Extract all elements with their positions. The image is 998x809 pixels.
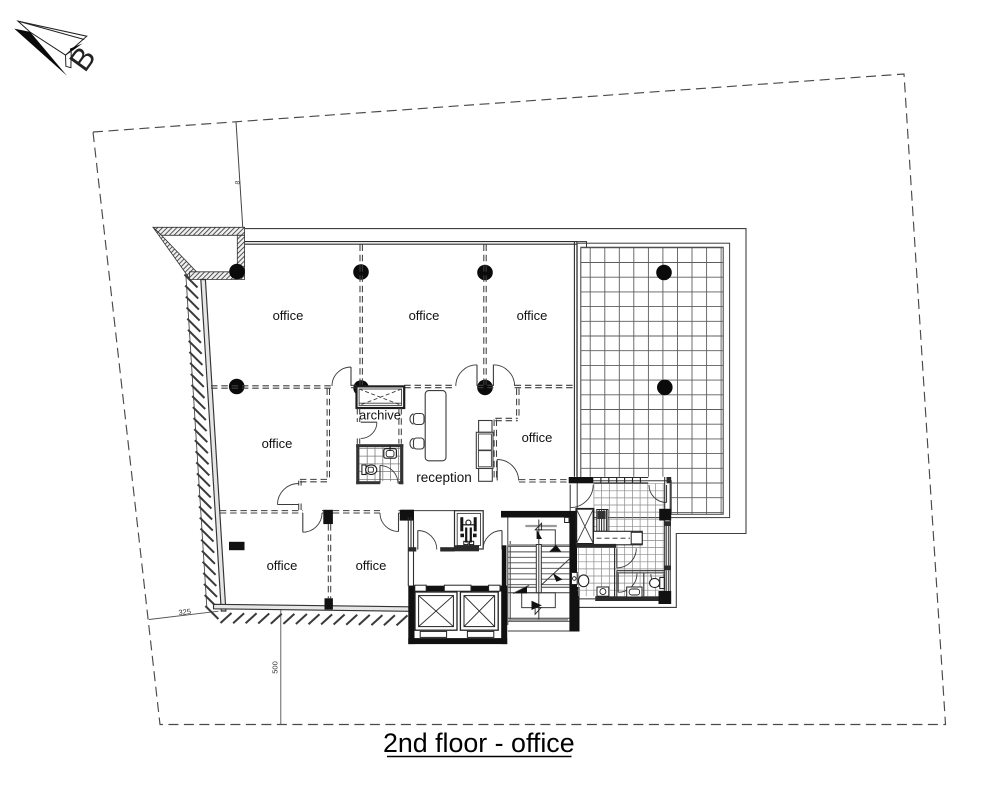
svg-text:office: office <box>273 308 304 323</box>
svg-text:2nd floor - office: 2nd floor - office <box>383 728 575 758</box>
svg-text:325: 325 <box>178 607 191 617</box>
svg-text:reception: reception <box>416 470 472 485</box>
svg-text:office: office <box>409 308 440 323</box>
svg-text:office: office <box>517 308 548 323</box>
svg-text:500: 500 <box>271 661 280 674</box>
svg-text:office: office <box>262 436 293 451</box>
svg-text:office: office <box>522 430 553 445</box>
svg-text:office: office <box>356 558 387 573</box>
svg-text:office: office <box>267 558 298 573</box>
svg-text:archive: archive <box>359 408 401 423</box>
